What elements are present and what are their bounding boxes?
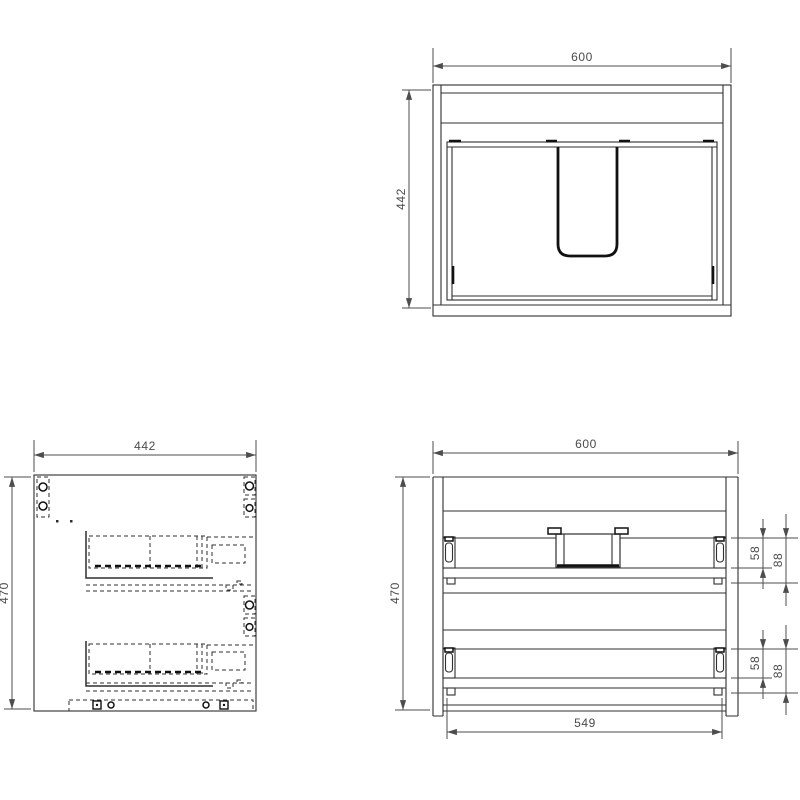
drawer-rail-band (443, 678, 726, 688)
slide-hook (237, 581, 242, 584)
siphon-notch (556, 534, 620, 567)
side-view-lower-drawer-runner (86, 641, 253, 691)
front-view-bottom-drawer (443, 648, 726, 695)
side-width-value: 442 (134, 439, 156, 453)
extension-lines (731, 649, 798, 693)
side-view-fitting-right-middle (244, 596, 255, 636)
side-view-dowel-marks (56, 520, 73, 523)
side-view-height-dimension: 470 (0, 477, 31, 709)
top-view-width-dimension: 600 (433, 48, 731, 83)
bottom-drawer-height-dimensions: 58 88 (731, 625, 798, 715)
side-height-value: 470 (0, 582, 11, 604)
front-view-rails (443, 511, 726, 649)
top-width-value: 600 (571, 50, 593, 64)
notch-clip-right (615, 528, 628, 534)
slide-block (212, 545, 245, 563)
slide-hook (237, 680, 242, 683)
top-drawer-overall-height: 88 (771, 553, 785, 568)
drawing-canvas: 600 442 (0, 0, 800, 800)
side-view-bottom-fittings (69, 700, 253, 711)
bracket-foot (714, 688, 722, 695)
side-view-wall-bracket-left (37, 477, 49, 517)
front-view-side-panels-and-bottom (443, 477, 726, 716)
front-width-value: 600 (575, 437, 597, 451)
screw-hole (39, 483, 47, 491)
bottom-drawer-slide-height: 58 (748, 656, 762, 671)
bracket-slot (446, 653, 453, 672)
front-view: 600 470 549 58 88 58 (388, 437, 798, 739)
top-view-drawer-box-inner-walls (447, 147, 717, 300)
bracket-cap (445, 648, 453, 652)
side-view: 442 470 (0, 439, 256, 711)
top-view-siphon-cutout (558, 147, 617, 256)
top-view-rear-ticks (453, 266, 713, 284)
bracket-slot (717, 653, 724, 672)
top-depth-value: 442 (394, 188, 408, 210)
drawer-box-hidden (89, 644, 207, 674)
screw-hole (246, 482, 254, 490)
bracket-cap (445, 537, 453, 541)
slide-hook (226, 683, 233, 688)
bracket-slot (446, 543, 453, 562)
slide-block (212, 652, 245, 670)
technical-drawing: 600 442 (0, 0, 800, 800)
notch-clip-left (548, 528, 561, 534)
front-view-cabinet-outline (433, 477, 738, 716)
top-view-side-panels-and-back-rail (433, 85, 731, 305)
screw-center (96, 704, 98, 706)
slide-hook (226, 585, 233, 590)
side-view-cabinet-outline (34, 475, 256, 711)
side-view-width-dimension: 442 (34, 439, 256, 472)
screw-hole (39, 502, 47, 510)
slide-bracket-right (714, 537, 726, 584)
top-view: 600 442 (394, 48, 731, 316)
hidden-lines (86, 644, 253, 691)
bracket-slot (717, 543, 724, 562)
hidden-lines (86, 536, 253, 591)
front-view-height-dimension: 470 (388, 477, 430, 710)
bracket-foot (447, 578, 455, 584)
top-view-drawer-box (447, 142, 717, 300)
bottom-drawer-overall-height: 88 (771, 664, 785, 679)
screw-hole (246, 601, 254, 609)
cam-lock (108, 702, 114, 708)
extension-lines (731, 538, 798, 583)
bottom-rail-width-value: 549 (574, 716, 596, 730)
bracket-cap (716, 648, 724, 652)
screw-center (223, 704, 225, 706)
front-view-top-drawer (443, 528, 726, 584)
drawer-box-hidden (89, 536, 207, 568)
top-view-cabinet-outline (433, 85, 731, 316)
top-drawer-height-dimensions: 58 88 (731, 514, 798, 606)
top-view-depth-dimension: 442 (394, 90, 431, 308)
side-view-upper-drawer-runner (86, 531, 253, 591)
front-view-bottom-rail-dimension: 549 (447, 698, 722, 739)
slide-bracket-left (443, 537, 455, 584)
bracket-cap (716, 537, 724, 541)
screw-hole (246, 505, 253, 512)
cam-lock (203, 702, 209, 708)
front-view-width-dimension: 600 (433, 437, 738, 474)
drawer-rail-band (443, 568, 726, 578)
screw-hole (246, 624, 253, 631)
top-drawer-slide-height: 58 (748, 546, 762, 561)
bracket-foot (714, 578, 722, 584)
front-height-value: 470 (388, 582, 402, 604)
side-view-wall-bracket-right (244, 477, 255, 517)
bracket-foot (447, 688, 455, 695)
